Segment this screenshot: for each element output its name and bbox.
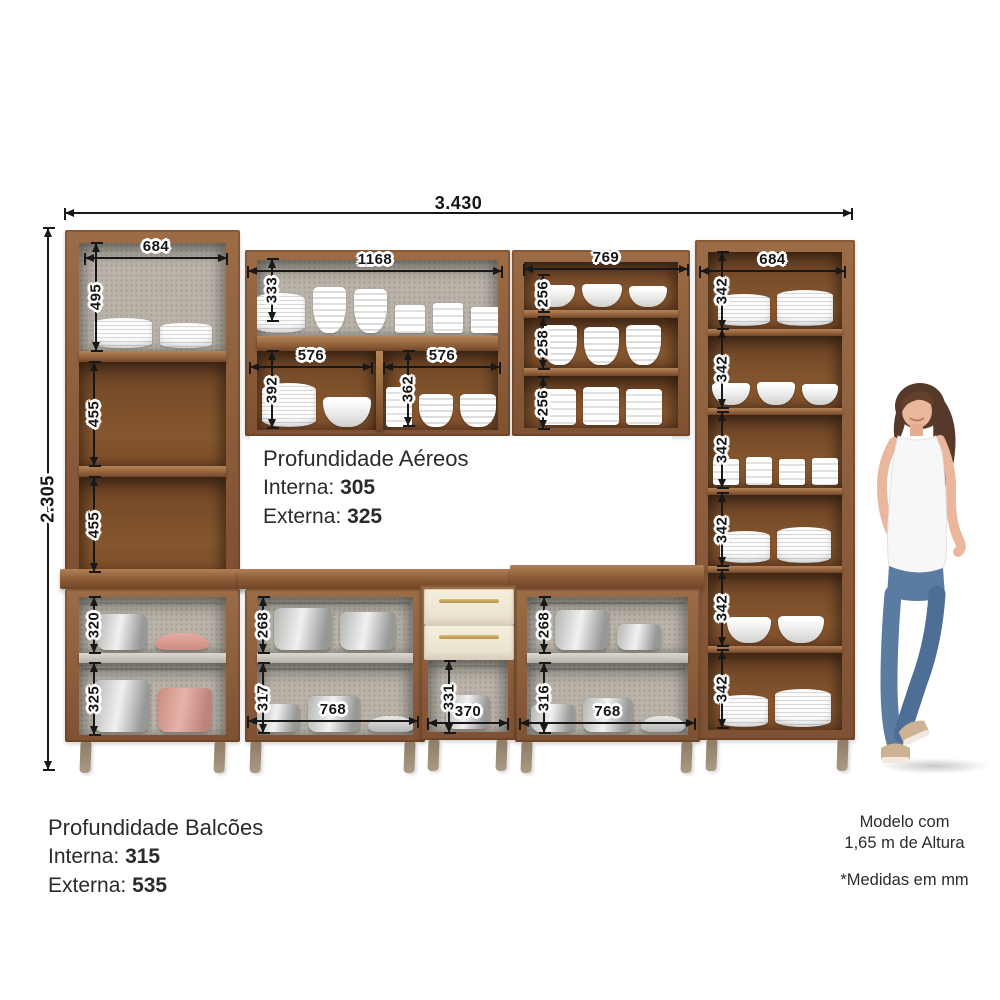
plate-rail-shelf <box>257 336 498 351</box>
countertop <box>60 569 244 589</box>
dim-upper-left-s2: 455 <box>93 362 95 466</box>
plate-stack <box>777 290 833 326</box>
drawer <box>424 625 514 660</box>
dim-upper-left-s1: 495 <box>95 243 97 351</box>
plate-stack <box>94 318 152 348</box>
aereos-interna: Interna: 305 <box>263 473 469 502</box>
cabinet-leg <box>79 742 91 773</box>
tall-right-cabinet <box>695 240 855 740</box>
kitchen-cabinet-dimension-diagram: Profundidade Aéreos Interna: 305 Externa… <box>0 0 1000 1000</box>
divider-panel <box>376 351 383 430</box>
shelf <box>79 653 226 663</box>
cabinet-leg <box>495 740 507 771</box>
bowl-stack <box>626 325 661 365</box>
pan <box>368 716 413 732</box>
pot <box>555 610 609 650</box>
dim-upper-right-s3: 256 <box>542 377 544 429</box>
bowl-stack <box>354 289 387 333</box>
dim-base-middle-width: 768 <box>248 720 418 722</box>
dim-upper-right-width: 769 <box>524 268 688 270</box>
cabinet-leg <box>249 742 261 773</box>
cabinet-leg <box>520 742 532 773</box>
bowl-stack <box>419 394 453 427</box>
bowl <box>757 382 795 405</box>
cup-stack <box>583 387 619 425</box>
cup-stack <box>812 458 838 485</box>
dim-total-height: 2.305 <box>47 228 49 770</box>
model-figure <box>858 380 998 780</box>
cabinet-leg <box>680 742 692 773</box>
units-note: *Medidas em mm <box>822 870 987 891</box>
plate-stack <box>777 527 831 563</box>
dim-tall-right-s4: 342 <box>721 493 723 566</box>
drawer-handle <box>439 599 499 603</box>
aereos-title: Profundidade Aéreos <box>263 444 469 473</box>
pan <box>641 716 685 732</box>
shelf <box>708 329 842 336</box>
dim-total-width: 3.430 <box>65 212 852 214</box>
dim-base-right-s1: 268 <box>543 597 545 653</box>
cabinet-leg <box>403 742 415 773</box>
shelf <box>79 466 226 477</box>
saucepan <box>617 624 661 650</box>
bowl <box>778 616 824 643</box>
bowl <box>802 384 838 405</box>
cabinet-leg <box>836 740 848 771</box>
model-figure-drawing <box>858 380 998 780</box>
countertop <box>510 565 704 589</box>
info-balcoes: Profundidade Balcões Interna: 315 Extern… <box>48 813 263 900</box>
dim-tall-right-s1: 342 <box>721 252 723 329</box>
dim-upper-middle-top: 333 <box>271 259 273 321</box>
model-note-line2: 1,65 m de Altura <box>822 833 987 854</box>
cup-stack <box>746 457 772 485</box>
dim-base-middle-s2: 317 <box>262 663 264 733</box>
dim-base-left-s1: 320 <box>93 597 95 653</box>
shelf <box>527 653 688 663</box>
cabinet-leg <box>705 740 717 771</box>
cup-stack <box>626 389 662 425</box>
bowl-stack <box>460 394 496 427</box>
dim-upper-middle-width: 1168 <box>248 270 502 272</box>
plate-stack <box>775 689 831 727</box>
upper-middle-cabinet <box>245 250 510 436</box>
bowl <box>582 284 622 307</box>
dim-base-left-s2: 325 <box>93 663 95 735</box>
cup-stack <box>471 307 499 333</box>
dim-upper-right-s1: 256 <box>542 275 544 312</box>
balcoes-externa: Externa: 535 <box>48 871 263 900</box>
plate-stack <box>160 323 212 348</box>
dim-upper-left-s3: 455 <box>93 477 95 572</box>
model-note-line1: Modelo com <box>822 812 987 833</box>
balcoes-interna: Interna: 315 <box>48 842 263 871</box>
model-height-note: Modelo com 1,65 m de Altura <box>822 812 987 854</box>
shelf <box>79 351 226 362</box>
drawer <box>424 589 514 625</box>
pot <box>97 614 147 650</box>
bowl <box>727 617 771 643</box>
balcoes-title: Profundidade Balcões <box>48 813 263 842</box>
dim-drawer-open-width: 370 <box>428 722 508 724</box>
drawer-handle <box>439 635 499 639</box>
dim-tall-right-s2: 342 <box>721 329 723 408</box>
dim-base-middle-s1: 268 <box>262 597 264 653</box>
dim-tall-right-s3: 342 <box>721 412 723 488</box>
dim-upper-middle-left-height: 392 <box>271 351 273 428</box>
frying-pan <box>155 633 209 650</box>
dim-upper-middle-right-width: 576 <box>384 366 500 368</box>
aereos-externa: Externa: 325 <box>263 502 469 531</box>
info-panel-aereos: Profundidade Aéreos Interna: 305 Externa… <box>250 436 672 566</box>
dim-base-right-width: 768 <box>520 722 695 724</box>
bowl-stack <box>313 287 346 333</box>
cabinet-leg <box>427 740 439 771</box>
aereos-info-text: Profundidade Aéreos Interna: 305 Externa… <box>263 444 469 531</box>
shelf-compartment <box>257 663 413 735</box>
dim-upper-middle-left-width: 576 <box>250 366 372 368</box>
cabinet-leg <box>213 742 225 773</box>
dim-tall-right-s5: 342 <box>721 570 723 646</box>
bowl <box>629 286 667 307</box>
pot <box>158 688 212 732</box>
shelf-compartment <box>257 597 413 653</box>
dim-upper-middle-right-height: 362 <box>407 351 409 426</box>
pot <box>340 612 396 650</box>
cup-stack <box>433 303 463 333</box>
cup-stack <box>779 459 805 485</box>
dim-upper-left-width: 684 <box>85 257 227 259</box>
dim-upper-right-s2: 258 <box>542 317 544 369</box>
pot <box>274 608 332 650</box>
shelf <box>257 653 413 663</box>
dim-tall-right-s6: 342 <box>721 650 723 728</box>
bowl-stack <box>584 327 619 365</box>
cup-stack <box>395 305 425 333</box>
bowl <box>323 397 371 427</box>
